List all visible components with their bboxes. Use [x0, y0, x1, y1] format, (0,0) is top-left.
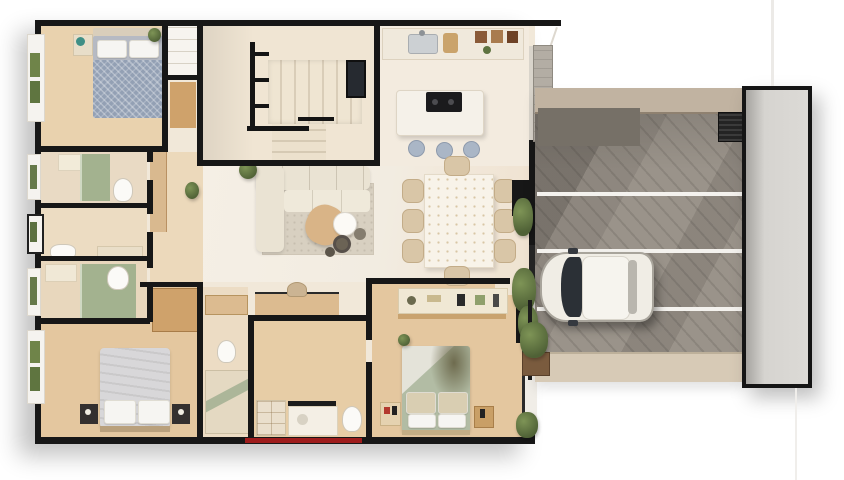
side-table-dark-small: [354, 228, 366, 240]
wc-window: [27, 214, 44, 254]
nightstand-plant: [76, 37, 85, 46]
wall-master-right: [197, 282, 203, 438]
shelf-dish: [475, 31, 487, 43]
wall-bathcol-right: [147, 180, 153, 214]
master-bed-base: [100, 426, 170, 432]
console-decor: [475, 295, 485, 305]
master-pillow: [104, 400, 136, 424]
kitchen-stool: [408, 140, 425, 157]
section-cut-accent: [245, 438, 362, 443]
stair-window: [346, 60, 366, 98]
nightstand-lamp: [178, 409, 184, 415]
wall-bedroom1-right: [162, 20, 168, 152]
kitchen-stool: [463, 141, 480, 158]
corner-shrub: [516, 412, 538, 438]
bath2-toilet: [107, 266, 129, 290]
bed2-pillow-white: [438, 414, 466, 428]
island-cooktop: [426, 92, 462, 112]
master-wardrobe: [152, 288, 198, 332]
window-pane-garden: [30, 165, 37, 189]
gate-post-line: [771, 0, 774, 86]
car-roof: [582, 256, 630, 320]
window-pane-garden: [30, 277, 37, 305]
shelf-dish: [491, 30, 503, 43]
master-window: [27, 330, 45, 404]
house: [35, 20, 535, 444]
bath2-vanity: [45, 264, 77, 282]
window-pane-garden: [30, 341, 40, 363]
vanity-basin: [297, 414, 308, 425]
driveway: [535, 88, 745, 380]
car-rear-window: [628, 260, 637, 314]
bedroom1-plant: [148, 28, 161, 42]
ensuite-toilet: [217, 340, 236, 363]
wall-bathcol-right: [147, 286, 153, 322]
car: [540, 252, 654, 322]
bed1-pillow: [129, 40, 159, 58]
bed1-duvet: [93, 60, 165, 118]
hallway-plant: [185, 182, 199, 199]
curb-line: [795, 388, 797, 480]
dining-chair: [402, 239, 424, 263]
wall-stair-right: [374, 20, 380, 166]
nightstand-decor-red: [384, 407, 390, 414]
shelf-dish: [507, 31, 518, 43]
ensuite-shower: [205, 370, 249, 434]
wall-bath3-right: [366, 362, 372, 438]
car-mirror: [568, 248, 578, 254]
bath1-shower: [80, 154, 110, 201]
bed2-nightstand-left: [380, 402, 401, 426]
floor-plan-scene: [0, 0, 844, 480]
bath3-vanity: [288, 406, 338, 436]
study-chair: [287, 282, 307, 297]
bed2-shelf: [398, 314, 506, 319]
wall-bath2-bath3: [41, 256, 149, 261]
window-pane-garden: [30, 222, 37, 242]
stair-railing-mid: [298, 117, 334, 121]
stair-railing-post: [255, 78, 269, 82]
wall-bath3-top: [248, 315, 370, 321]
bed2-pillow-white: [408, 414, 436, 428]
window-pane-garden: [30, 53, 40, 77]
kitchen-board: [443, 33, 458, 53]
cooktop-burner: [432, 99, 438, 105]
bed2-base: [402, 430, 470, 435]
stair-railing-bottom: [247, 126, 309, 131]
bed2-pillow: [406, 392, 436, 414]
stair-railing-post: [255, 104, 269, 108]
wall-bedroom2-top: [372, 278, 510, 284]
car-windshield: [561, 257, 582, 317]
console-decor: [493, 294, 499, 307]
bedroom1-window: [27, 34, 45, 122]
wall-stair-left: [197, 20, 203, 166]
window-pane-garden: [30, 367, 40, 391]
nightstand-lamp-dark: [392, 406, 397, 415]
cooktop-burner: [448, 99, 454, 105]
wall-bath3-right: [366, 278, 372, 340]
side-table-dark: [333, 235, 351, 253]
bath1-vanity: [58, 154, 82, 171]
dining-chair: [444, 156, 470, 176]
master-pillow: [138, 400, 170, 424]
console-decor: [427, 295, 441, 302]
ensuite-counter: [205, 295, 248, 315]
window-pane-garden: [30, 81, 40, 103]
stair-railing-post: [255, 52, 269, 56]
parking-stripe: [537, 192, 743, 196]
kitchen-sink: [408, 34, 438, 54]
console-decor: [407, 296, 416, 305]
sofa-chaise: [256, 166, 284, 252]
facade-shrub: [513, 198, 533, 236]
dining-chair: [402, 179, 424, 203]
planter-shrub: [520, 322, 548, 358]
wall-bathcol-right: [147, 232, 153, 268]
hall-closet: [168, 25, 199, 75]
bed1-pillow: [97, 40, 127, 58]
side-table-dark-small: [325, 247, 335, 257]
wall-outer-top: [35, 20, 535, 26]
wall-stair-bottom: [197, 160, 380, 166]
nightstand-lamp-dark: [480, 409, 485, 418]
wall-bathcol-right: [147, 152, 153, 162]
console-decor: [457, 294, 465, 306]
wall-bath-master: [35, 318, 150, 324]
dining-chair: [494, 239, 516, 263]
sidewalk: [535, 352, 745, 382]
dining-table: [424, 174, 494, 268]
bedroom2-plant: [398, 334, 410, 346]
retaining-block: [538, 108, 640, 146]
bed2-console: [398, 288, 508, 314]
car-mirror: [568, 320, 578, 326]
bed2-duvet: [402, 346, 470, 432]
hall-open-shelf: [170, 82, 196, 128]
bath3-toilet: [342, 406, 362, 432]
shower-glass-door: [205, 376, 249, 413]
dining-chair: [402, 209, 424, 233]
kitchen-faucet: [419, 30, 425, 36]
wall-bath1-bath2: [41, 203, 149, 208]
nightstand-lamp: [85, 409, 91, 415]
wall-master-top: [140, 282, 203, 287]
roof-edge-bar: [535, 20, 561, 26]
wall-ensuite-right: [248, 318, 254, 438]
counter-plant: [483, 46, 491, 54]
bath3-cubby-shelf: [256, 400, 286, 436]
bed2-pillow: [438, 392, 468, 414]
bath1-window: [27, 154, 41, 200]
bath2-window: [27, 268, 41, 316]
gate-panel: [742, 86, 812, 388]
bath1-toilet: [113, 178, 133, 202]
